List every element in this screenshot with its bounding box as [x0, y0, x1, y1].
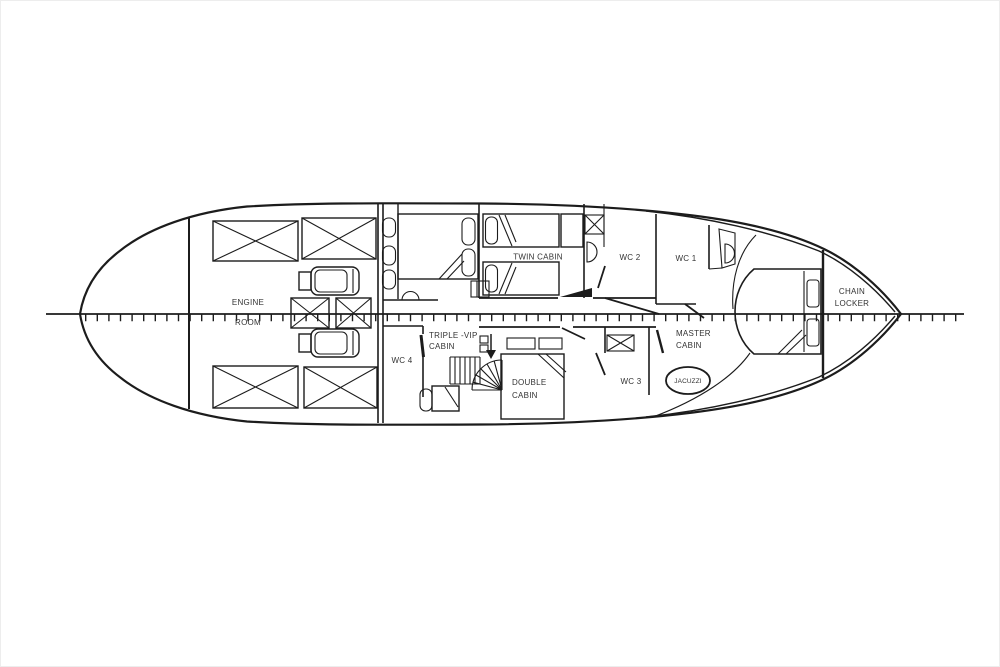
label-twin-cabin: TWIN CABIN [513, 253, 563, 262]
shelf-icon [383, 270, 396, 289]
label-master-cabin: MASTER [676, 329, 711, 338]
engine-icon [299, 329, 359, 357]
label-wc1: WC 1 [676, 254, 697, 263]
cabinet-icon [561, 214, 583, 247]
door-icon [596, 353, 605, 375]
fuel-tank-icon [304, 367, 377, 408]
deck-plan-page: ENGINE ROOM TWIN CABIN WC 2 WC 1 CHAIN L… [0, 0, 1000, 667]
shower-icon [585, 215, 604, 234]
sink-icon [402, 292, 419, 301]
locker-icon [539, 338, 562, 349]
door-icon [421, 335, 424, 357]
label-double-cabin-2: CABIN [512, 391, 538, 400]
single-bed-icon [483, 262, 559, 295]
label-chain-locker: CHAIN [839, 287, 865, 296]
door-icon [605, 298, 659, 314]
door-icon [657, 330, 663, 353]
shower-icon [607, 335, 634, 351]
berth-icon [420, 386, 459, 411]
engine-icon [299, 267, 359, 295]
double-bed-icon [735, 269, 821, 354]
engine-room [213, 218, 377, 408]
fuel-tank-icon [213, 366, 298, 408]
label-double-cabin: DOUBLE [512, 378, 546, 387]
shelf-icon [383, 246, 396, 265]
label-engine-room-2: ROOM [235, 318, 261, 327]
label-triple-vip-cabin: TRIPLE -VIP [429, 331, 478, 340]
label-engine-room: ENGINE [232, 298, 264, 307]
locker-icon [507, 338, 535, 349]
door-icon [598, 266, 605, 288]
centerline [46, 314, 964, 318]
deck-plan-drawing: ENGINE ROOM TWIN CABIN WC 2 WC 1 CHAIN L… [1, 1, 1000, 666]
hatch-icon [336, 298, 371, 328]
triple-vip-cabin [383, 204, 479, 411]
door-icon [685, 304, 704, 318]
label-triple-vip-cabin-2: CABIN [429, 342, 455, 351]
toilet-icon [587, 242, 597, 262]
hatch-icon [291, 298, 329, 328]
shelf-icon [383, 218, 396, 237]
door-icon [562, 328, 585, 339]
wc1-room [656, 214, 722, 318]
fuel-tank-icon [302, 218, 376, 259]
label-jacuzzi: JACUZZI [674, 378, 702, 385]
label-wc2: WC 2 [620, 253, 641, 262]
label-master-cabin-2: CABIN [676, 341, 702, 350]
label-chain-locker-2: LOCKER [835, 299, 869, 308]
door-icon [560, 288, 592, 297]
single-bed-icon [483, 214, 559, 247]
double-bed-icon [398, 214, 478, 279]
fuel-tank-icon [213, 221, 298, 261]
toilet-icon [725, 244, 735, 263]
label-wc3: WC 3 [621, 377, 642, 386]
label-wc4: WC 4 [392, 356, 413, 365]
wc2-room [584, 204, 605, 298]
